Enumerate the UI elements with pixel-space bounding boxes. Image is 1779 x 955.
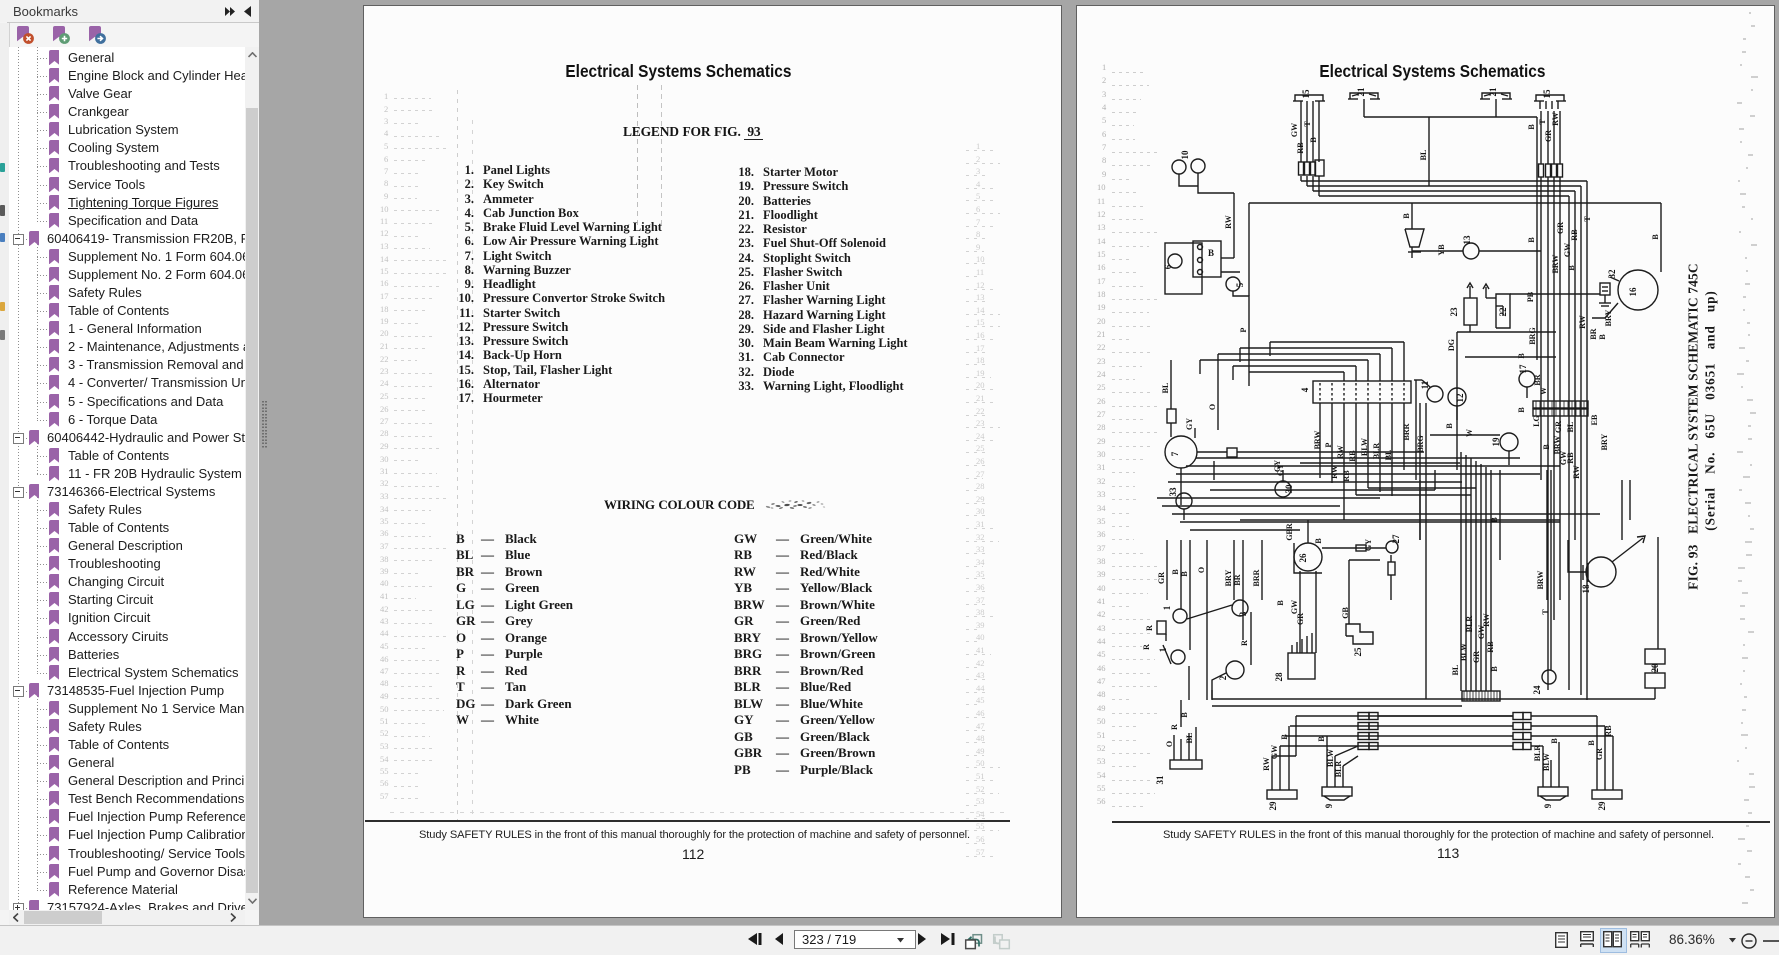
svg-text:GR: GR	[1544, 130, 1553, 142]
svg-text:GW: GW	[1563, 243, 1572, 257]
svg-text:GW: GW	[1290, 600, 1299, 614]
svg-text:B: B	[1280, 734, 1289, 740]
svg-text:13: 13	[1462, 235, 1472, 245]
svg-text:W: W	[1465, 429, 1474, 437]
svg-text:7: 7	[1170, 451, 1180, 456]
svg-text:GW: GW	[1270, 745, 1279, 759]
svg-text:RW: RW	[1330, 465, 1339, 479]
svg-text:BLR: BLR	[1334, 761, 1343, 778]
svg-text:11: 11	[1420, 380, 1430, 389]
svg-text:28: 28	[1274, 672, 1284, 682]
svg-text:B: B	[1276, 600, 1285, 606]
svg-text:W: W	[1539, 387, 1548, 395]
svg-text:BL: BL	[1384, 450, 1393, 461]
svg-text:29: 29	[1268, 801, 1278, 811]
svg-text:4: 4	[1300, 387, 1310, 392]
svg-text:B: B	[1527, 124, 1536, 130]
svg-text:B: B	[1517, 407, 1526, 413]
svg-text:B: B	[1527, 237, 1536, 243]
svg-text:B: B	[1180, 571, 1189, 577]
svg-text:BLR: BLR	[1533, 745, 1542, 762]
svg-text:15: 15	[1542, 89, 1552, 99]
svg-text:BLR: BLR	[1465, 616, 1474, 633]
svg-text:17: 17	[1518, 364, 1528, 374]
svg-text:PB: PB	[1526, 291, 1535, 302]
svg-text:19: 19	[1491, 437, 1501, 447]
svg-text:R: R	[1145, 625, 1154, 631]
svg-text:B: B	[1171, 569, 1180, 575]
svg-text:30: 30	[1284, 484, 1294, 494]
svg-text:T: T	[1583, 216, 1592, 222]
svg-text:P: P	[1324, 442, 1333, 447]
svg-text:BRW: BRW	[1536, 571, 1545, 590]
svg-text:BL: BL	[1419, 150, 1428, 161]
svg-text:BR: BR	[1533, 374, 1542, 385]
svg-text:O: O	[1165, 741, 1174, 747]
svg-text:B: B	[1314, 538, 1323, 544]
svg-text:RB: RB	[1296, 142, 1305, 154]
svg-text:BRR: BRR	[1252, 569, 1261, 586]
svg-text:LG: LG	[1532, 415, 1541, 427]
svg-text:RB: RB	[1342, 470, 1351, 482]
svg-text:R: R	[1142, 644, 1151, 650]
svg-text:GR: GR	[1595, 748, 1604, 760]
svg-text:27: 27	[1391, 534, 1401, 544]
svg-text:B: B	[1587, 740, 1596, 746]
svg-text:32: 32	[1607, 269, 1617, 279]
svg-text:RW: RW	[1572, 465, 1581, 479]
svg-text:9: 9	[1324, 803, 1334, 808]
svg-text:22: 22	[1498, 307, 1508, 317]
svg-text:GR: GR	[1472, 651, 1481, 663]
svg-text:GR: GR	[1554, 421, 1563, 433]
svg-text:GR: GR	[1556, 222, 1565, 234]
svg-text:RB: RB	[1566, 452, 1575, 464]
svg-text:GR: GR	[1157, 572, 1166, 584]
svg-text:9: 9	[1543, 803, 1553, 808]
svg-text:EB: EB	[1590, 414, 1599, 425]
svg-text:5: 5	[1235, 282, 1245, 287]
svg-text:RW: RW	[1578, 315, 1587, 329]
svg-text:B: B	[1402, 213, 1411, 219]
svg-text:B: B	[1317, 736, 1326, 742]
svg-text:12: 12	[1455, 393, 1465, 403]
svg-text:BRY: BRY	[1224, 569, 1233, 586]
svg-text:GY: GY	[1185, 418, 1194, 430]
svg-text:BRR: BRR	[1402, 423, 1411, 440]
svg-text:33: 33	[1168, 487, 1178, 497]
svg-text:B: B	[1567, 265, 1576, 271]
svg-text:24: 24	[1532, 685, 1542, 695]
svg-text:BL: BL	[1451, 665, 1460, 676]
svg-text:16: 16	[1628, 287, 1638, 297]
svg-text:T: T	[1538, 119, 1547, 125]
svg-text:GBR: GBR	[1285, 523, 1294, 541]
svg-text:BL: BL	[1566, 422, 1575, 433]
svg-text:R: R	[1170, 724, 1179, 730]
svg-text:B: B	[1542, 444, 1551, 450]
svg-text:BRG: BRG	[1528, 327, 1537, 344]
svg-text:B: B	[1445, 423, 1454, 429]
svg-text:BL: BL	[1185, 733, 1194, 744]
svg-text:B: B	[1490, 666, 1499, 672]
svg-text:BRY: BRY	[1600, 433, 1609, 450]
svg-text:T: T	[1541, 609, 1550, 615]
svg-text:BR: BR	[1589, 328, 1598, 339]
svg-text:25: 25	[1353, 647, 1363, 657]
svg-text:10: 10	[1180, 150, 1190, 160]
svg-text:RW: RW	[1224, 215, 1233, 229]
svg-text:GW: GW	[1290, 123, 1299, 137]
svg-text:BLW: BLW	[1360, 438, 1369, 456]
svg-text:BRW: BRW	[1313, 431, 1322, 450]
svg-text:23: 23	[1449, 307, 1459, 317]
svg-text:31: 31	[1155, 775, 1165, 785]
svg-text:B: B	[1208, 248, 1214, 258]
svg-text:B: B	[1309, 137, 1318, 143]
svg-text:29: 29	[1597, 801, 1607, 811]
svg-text:B: B	[1550, 738, 1559, 744]
svg-text:15: 15	[1301, 89, 1311, 99]
svg-text:BRW: BRW	[1551, 255, 1560, 274]
svg-text:BLW: BLW	[1542, 753, 1551, 771]
svg-text:RW: RW	[1482, 613, 1491, 627]
svg-text:B: B	[1490, 517, 1499, 523]
svg-text:O: O	[1208, 404, 1217, 410]
svg-text:R: R	[1240, 640, 1249, 646]
svg-text:RB: RB	[1570, 229, 1579, 241]
svg-text:BR: BR	[1233, 574, 1242, 585]
svg-text:RB: RB	[1604, 725, 1613, 737]
svg-text:6: 6	[1163, 264, 1173, 269]
svg-text:YB: YB	[1437, 244, 1446, 256]
svg-text:B: B	[1598, 334, 1607, 340]
svg-text:26: 26	[1298, 553, 1308, 563]
svg-text:DG: DG	[1447, 339, 1456, 351]
svg-text:1: 1	[1162, 605, 1172, 610]
svg-text:T: T	[1303, 121, 1312, 127]
svg-text:RB: RB	[1486, 641, 1495, 653]
svg-text:BLW: BLW	[1459, 643, 1468, 661]
svg-text:B: B	[1651, 234, 1660, 240]
svg-text:1: 1	[1158, 647, 1168, 652]
svg-text:3: 3	[1238, 611, 1248, 616]
svg-text:P: P	[1239, 327, 1248, 332]
svg-text:18: 18	[1581, 584, 1591, 594]
svg-text:BL: BL	[1161, 383, 1170, 394]
svg-text:O: O	[1197, 567, 1206, 573]
svg-text:BLR: BLR	[1372, 443, 1381, 460]
svg-text:B: B	[1517, 353, 1526, 359]
svg-text:RW: RW	[1551, 112, 1560, 126]
